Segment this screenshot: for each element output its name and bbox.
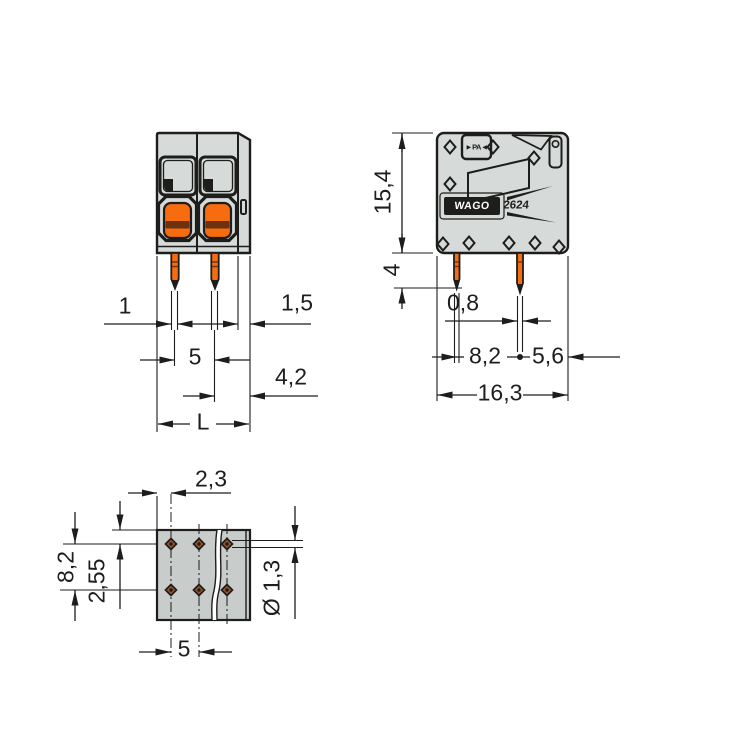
technical-drawing: 1 1,5 5 4,2 L 15,4 4 0,8 8,2 5,6 16,3 2,… — [0, 0, 750, 750]
dim-label-hole-row-spacing: 8,2 — [55, 551, 78, 583]
dim-label-pin-length: 4 — [381, 264, 404, 277]
push-button — [164, 203, 191, 238]
dim-label-edge-to-first-hole: 2,3 — [195, 468, 227, 491]
side-view — [392, 133, 620, 401]
dim-label-pin-row-spacing: 8,2 — [469, 345, 501, 368]
wago-logo-text: WAGO — [454, 201, 490, 212]
dim-label-edge-to-first-row: 2,55 — [86, 559, 109, 604]
dim-label-pole-pitch: 5 — [189, 346, 202, 369]
dim-label-rear-pin-to-edge: 5,6 — [532, 345, 564, 368]
dim-label-overall-depth: 16,3 — [478, 382, 523, 405]
dim-label-hole-pitch: 5 — [178, 638, 191, 661]
dim-label-height: 15,4 — [372, 170, 395, 215]
dim-label-right-step: 1,5 — [281, 292, 313, 315]
push-button-band — [166, 221, 190, 229]
drawing-linework — [0, 0, 750, 750]
dim-label-overall-length: L — [197, 411, 210, 434]
dim-label-hole-diameter: Ø 1,3 — [261, 560, 284, 616]
material-marking: ►PA◄ — [465, 143, 488, 151]
dim-label-pin-thickness: 0,8 — [447, 292, 479, 315]
dim-label-pin-to-right-edge: 4,2 — [275, 366, 307, 389]
dim-label-pin-width: 1 — [119, 295, 132, 318]
clamp-spring — [164, 179, 173, 191]
series-marking: 2624 — [503, 200, 530, 212]
